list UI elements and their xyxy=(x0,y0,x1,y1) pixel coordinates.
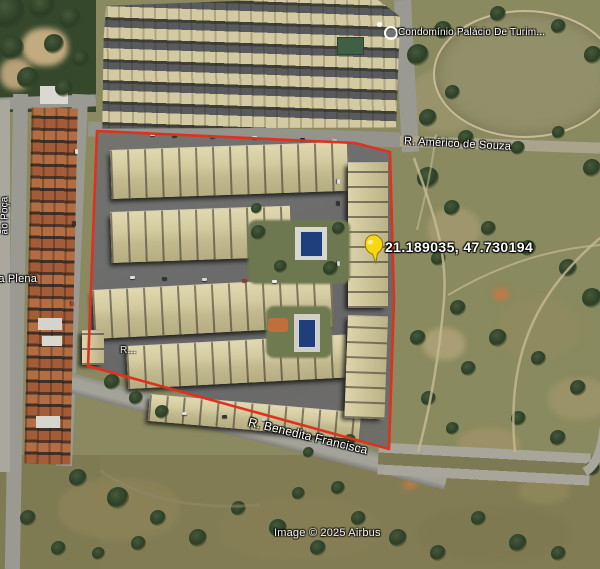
tree xyxy=(107,487,129,509)
terrain-patch xyxy=(493,288,509,300)
copyright-attribution: Image © 2025 Airbus xyxy=(274,527,381,539)
building-row xyxy=(82,330,104,365)
tree xyxy=(461,361,476,376)
tree xyxy=(72,50,89,67)
tree xyxy=(585,461,600,476)
car xyxy=(242,279,247,282)
tree xyxy=(150,510,166,526)
pushpin-icon[interactable] xyxy=(360,233,388,265)
tree xyxy=(481,221,496,236)
tree xyxy=(552,126,565,139)
swimming-pool-lower xyxy=(298,319,316,348)
swimming-pool-upper xyxy=(300,231,323,257)
pin-coordinates-label: 21.189035, 47.730194 xyxy=(385,239,533,255)
white-roof-3 xyxy=(42,336,62,346)
tree xyxy=(310,540,326,556)
tree xyxy=(421,391,436,406)
white-roof-4 xyxy=(36,416,60,428)
car xyxy=(75,149,78,154)
car xyxy=(222,415,227,418)
tree xyxy=(331,481,345,495)
car xyxy=(162,277,167,280)
tree xyxy=(410,330,426,346)
tree xyxy=(417,167,439,189)
white-roof-2 xyxy=(38,318,62,330)
tree xyxy=(92,547,105,560)
building-row xyxy=(344,315,388,419)
street-label-da-plena: da Plena xyxy=(0,273,37,285)
tree xyxy=(17,67,39,89)
tree xyxy=(20,510,36,526)
tree xyxy=(445,85,460,100)
car xyxy=(182,412,187,415)
tree xyxy=(509,534,527,552)
tree xyxy=(251,203,262,214)
tree xyxy=(550,430,566,446)
tree xyxy=(444,200,460,216)
sports-court xyxy=(337,37,364,55)
tree xyxy=(303,447,314,458)
street-label-vertical: ão Poça xyxy=(0,196,11,234)
tree xyxy=(551,546,566,561)
tree xyxy=(531,351,546,366)
poi-label: Condomínio Palácio De Turim... xyxy=(398,27,545,38)
car xyxy=(337,261,340,266)
left-sidewalk xyxy=(0,100,10,472)
clay-court xyxy=(268,318,288,332)
tree xyxy=(351,511,366,526)
tree xyxy=(430,545,446,561)
tree xyxy=(511,141,525,155)
tree xyxy=(584,46,600,64)
tree xyxy=(51,541,66,556)
tree xyxy=(511,411,526,426)
tree xyxy=(251,225,266,240)
tree xyxy=(292,487,305,500)
car xyxy=(202,278,207,281)
tree xyxy=(69,469,87,487)
tree xyxy=(44,34,64,54)
car xyxy=(73,221,76,226)
tree xyxy=(407,44,429,66)
tree xyxy=(59,7,81,29)
tree xyxy=(129,391,143,405)
car xyxy=(337,201,340,206)
tree xyxy=(570,380,586,396)
tree xyxy=(323,261,338,276)
car xyxy=(130,276,135,279)
tree xyxy=(131,536,146,551)
car xyxy=(272,280,277,283)
tree xyxy=(55,79,73,97)
tree xyxy=(559,259,577,277)
building-row xyxy=(110,142,349,199)
tree xyxy=(582,288,600,308)
tree xyxy=(274,260,287,273)
tree xyxy=(490,6,506,22)
tree xyxy=(551,19,566,34)
north-condo-block xyxy=(94,0,402,133)
car xyxy=(71,301,74,306)
tree xyxy=(489,329,507,347)
tree xyxy=(419,109,437,127)
terracotta-houses xyxy=(24,108,77,465)
tree xyxy=(189,529,207,547)
terrain-patch xyxy=(423,328,465,360)
tree xyxy=(0,36,24,60)
car xyxy=(337,179,340,184)
tree xyxy=(231,501,246,516)
tree xyxy=(104,374,120,390)
tree xyxy=(446,422,459,435)
poi-dot xyxy=(377,22,382,27)
tree xyxy=(389,529,407,547)
tree xyxy=(583,159,600,177)
tree xyxy=(471,511,486,526)
tree xyxy=(450,300,466,316)
poi-icon[interactable] xyxy=(384,26,398,40)
map-canvas[interactable]: Condomínio Palácio De Turim... R. Améric… xyxy=(0,0,600,569)
tree xyxy=(332,222,345,235)
street-label-inner: R... xyxy=(120,345,136,356)
tree xyxy=(155,405,169,419)
